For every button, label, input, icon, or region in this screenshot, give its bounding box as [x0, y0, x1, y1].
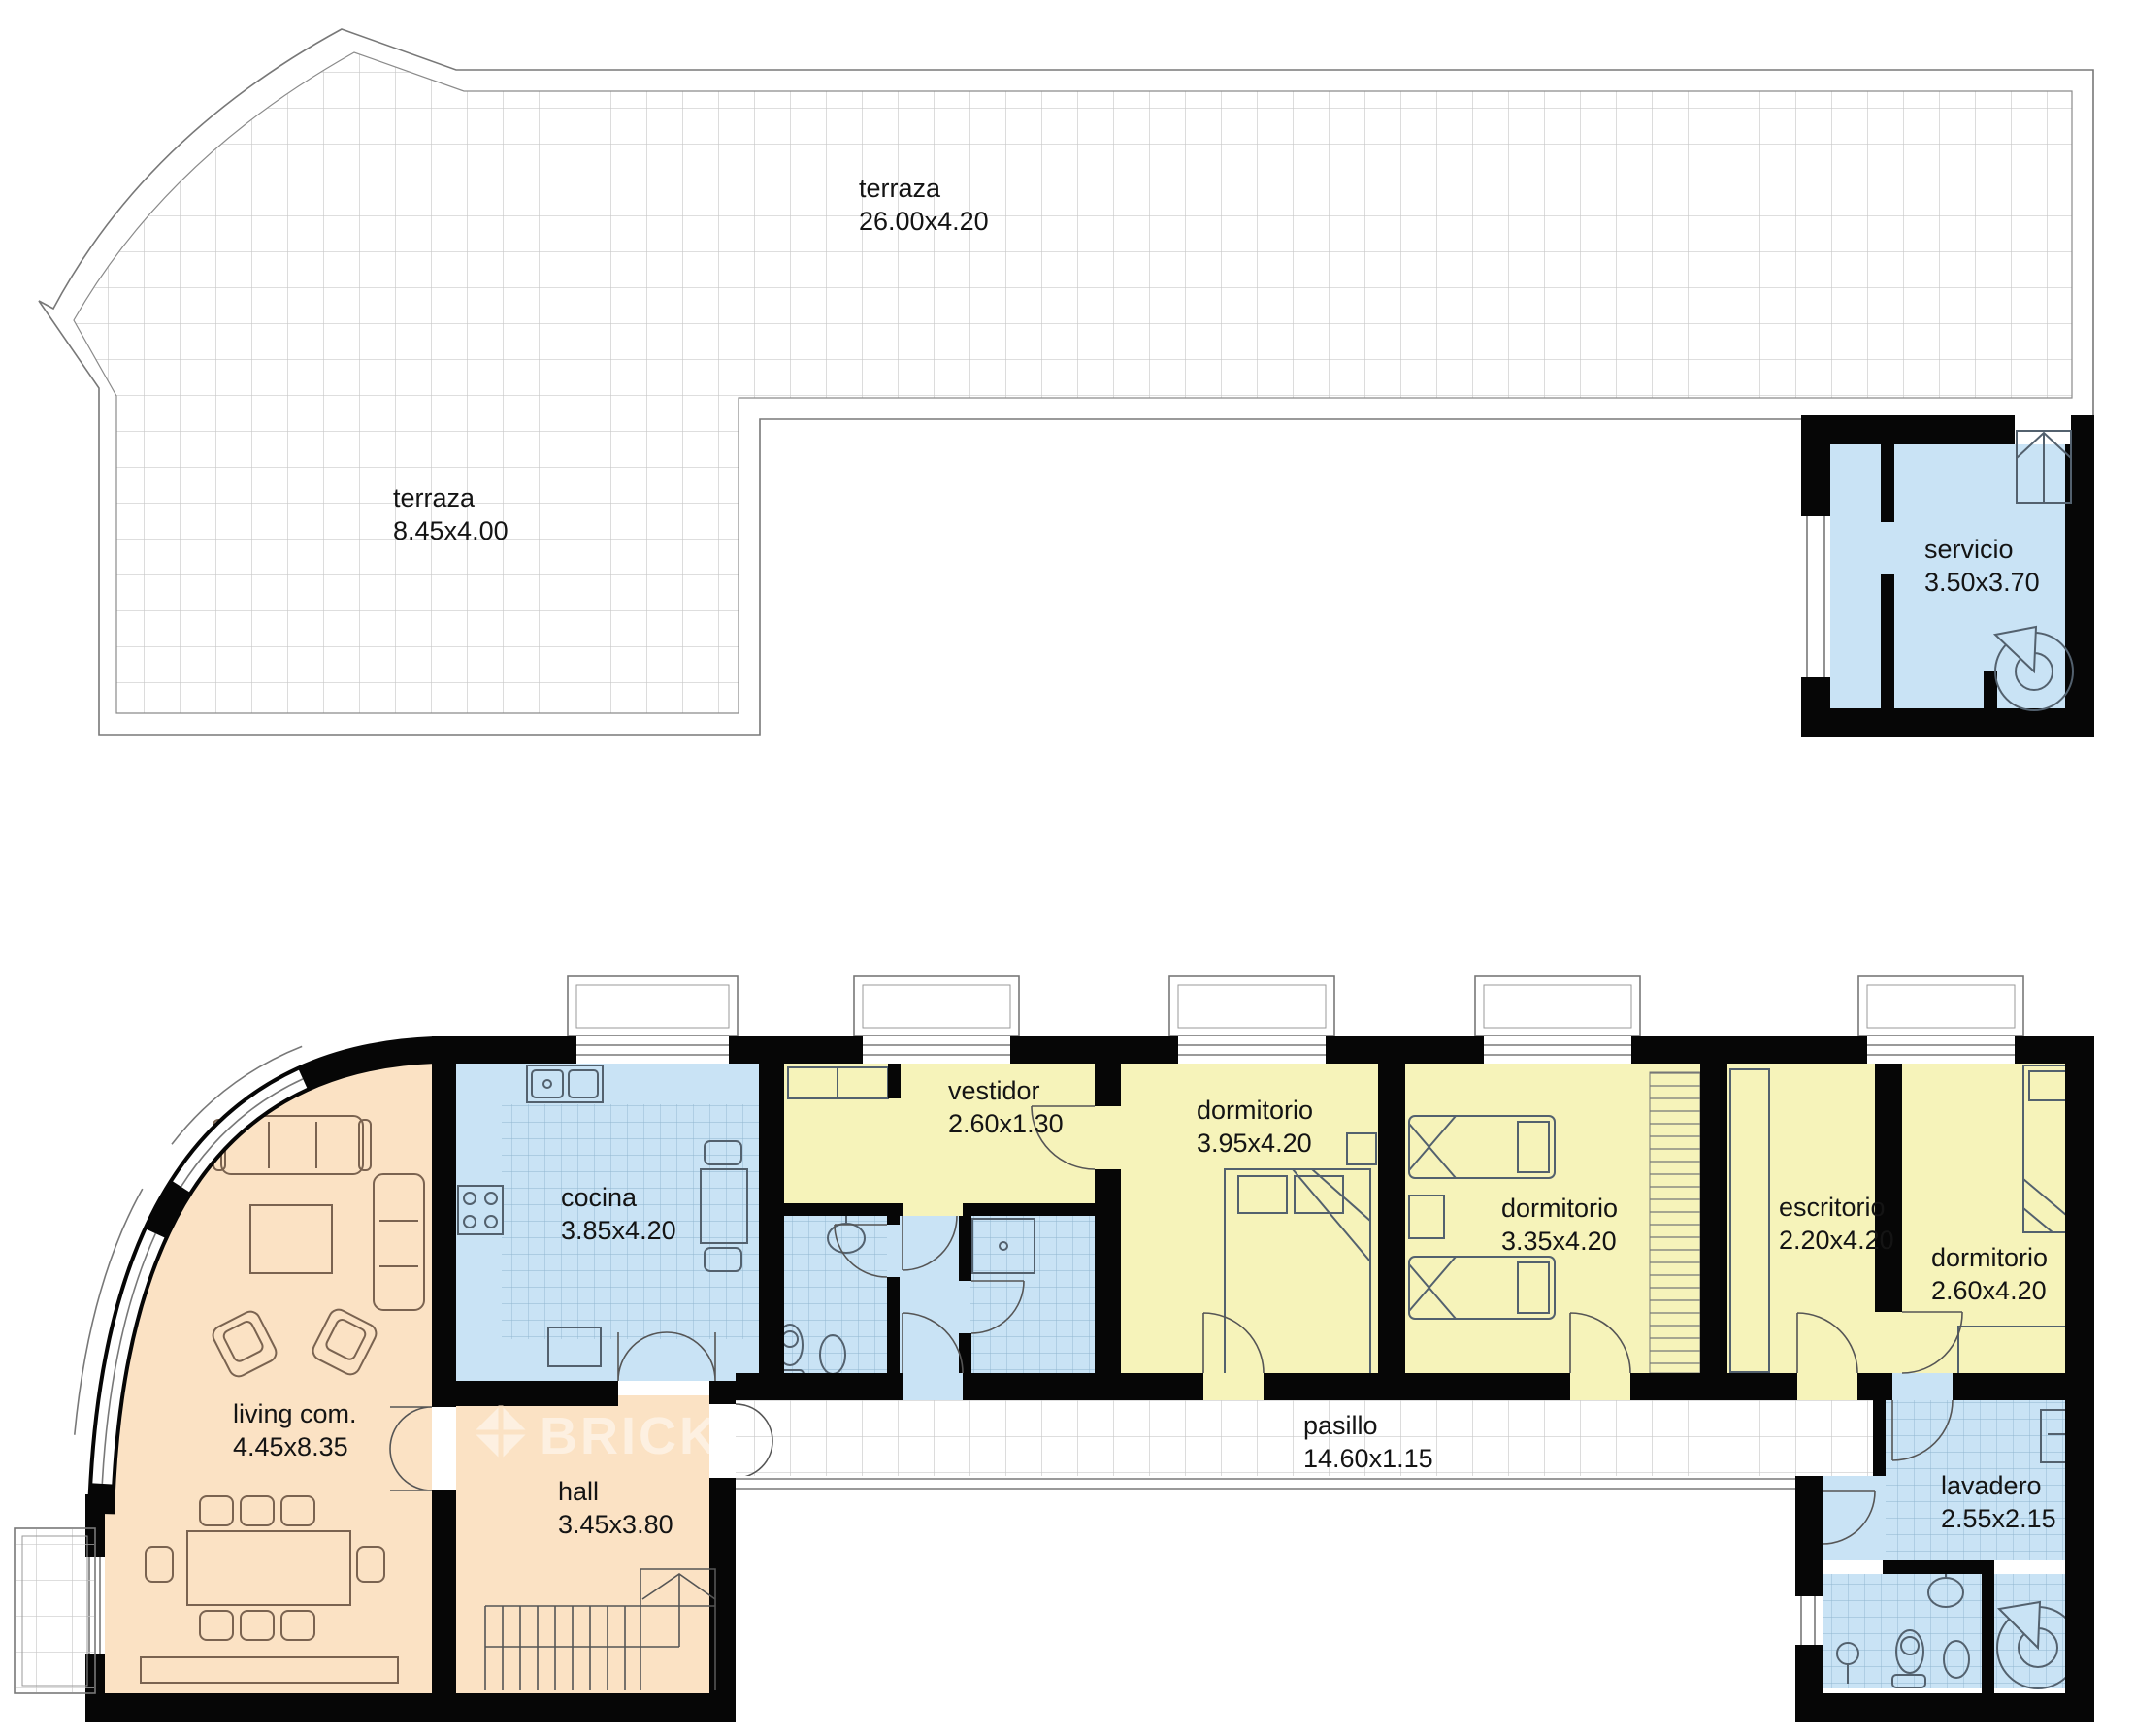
dormitorio1-dims: 3.95x4.20 — [1197, 1129, 1312, 1158]
window-bumpout-vestidor — [854, 976, 1019, 1036]
window-bumpout-dorm2 — [1475, 976, 1640, 1036]
servicio-partition-lower — [1881, 574, 1894, 708]
partition-vestidor-a — [784, 1203, 903, 1216]
wall-lavadero-west-a — [1795, 1476, 1823, 1596]
living-floor — [101, 1050, 440, 1693]
wardrobe-striped-icon — [1650, 1072, 1700, 1373]
partition-vestidor-b — [963, 1203, 1095, 1216]
floor-plan-drawing: terraza 26.00x4.20 terraza 8.45x4.00 ser… — [0, 0, 2135, 1736]
wall-lavadero-west-upper — [1873, 1400, 1886, 1476]
vestidor-dims: 2.60x1.30 — [948, 1109, 1064, 1138]
bath-right-tiles — [970, 1211, 1095, 1373]
wall-bottom-right — [1795, 1693, 2094, 1722]
servicio-dims: 3.50x3.70 — [1924, 568, 2040, 597]
living-label: living com. — [233, 1399, 357, 1428]
bath2-tiles — [1823, 1574, 1982, 1688]
window-bumpout-dorm1 — [1169, 976, 1334, 1036]
dormitorio3-label: dormitorio — [1931, 1243, 2048, 1272]
pasillo-south-glazing — [736, 1476, 1795, 1491]
pasillo-dims: 14.60x1.15 — [1303, 1444, 1433, 1473]
terraza-left-label: terraza — [393, 483, 476, 512]
partition-bathleft-a — [887, 1216, 900, 1225]
hall-dims: 3.45x3.80 — [558, 1510, 673, 1539]
planter-box — [15, 1528, 95, 1693]
lavadero-vestibule-floor — [1823, 1476, 1886, 1560]
wall-living-divider — [432, 1036, 456, 1693]
cocina-label: cocina — [561, 1183, 638, 1212]
partition-bath2-h — [1883, 1560, 1992, 1574]
partition-bathright-b — [959, 1333, 971, 1373]
servicio-window — [1801, 516, 1830, 677]
brick-watermark-text: BRICK — [540, 1407, 720, 1465]
servicio-label: servicio — [1924, 535, 2014, 564]
wall-dorm1-dorm2 — [1378, 1064, 1405, 1373]
dormitorio1-label: dormitorio — [1197, 1096, 1313, 1125]
dormitorio3-dims: 2.60x4.20 — [1931, 1276, 2047, 1305]
escritorio-label: escritorio — [1779, 1193, 1886, 1222]
lavadero-label: lavadero — [1941, 1471, 2042, 1500]
terrace-roof: terraza 26.00x4.20 terraza 8.45x4.00 — [39, 29, 2093, 735]
wall-cocina-hall-a — [456, 1381, 618, 1406]
wall-cocina-vestidor — [759, 1064, 784, 1373]
hall-label: hall — [558, 1477, 599, 1506]
pasillo-label: pasillo — [1303, 1411, 1378, 1440]
wall-bottom-left — [85, 1693, 736, 1722]
escritorio-dims: 2.20x4.20 — [1779, 1226, 1894, 1255]
partition-bathleft-b — [887, 1277, 900, 1373]
living-dims: 4.45x8.35 — [233, 1432, 348, 1461]
partition-closet-stub — [888, 1064, 901, 1098]
window-bumpout-cocina — [568, 976, 738, 1036]
vestidor-label: vestidor — [948, 1076, 1040, 1105]
partition-bath2-v — [1982, 1560, 1994, 1693]
dormitorio2-dims: 3.35x4.20 — [1501, 1227, 1617, 1256]
wall-dorm2-escritorio — [1700, 1064, 1727, 1373]
servicio-partition-upper — [1881, 444, 1894, 522]
cocina-dims: 3.85x4.20 — [561, 1216, 676, 1245]
lavadero-west-window — [1795, 1596, 1823, 1645]
terraza-left-dims: 8.45x4.00 — [393, 516, 509, 545]
servicio-room: servicio 3.50x3.70 — [1801, 415, 2094, 737]
terraza-top-dims: 26.00x4.20 — [859, 207, 989, 236]
floor-plan-page: terraza 26.00x4.20 terraza 8.45x4.00 ser… — [0, 0, 2135, 1736]
window-bumpouts — [568, 976, 2023, 1036]
dormitorio2-label: dormitorio — [1501, 1194, 1618, 1223]
wall-lavadero-west-b — [1795, 1645, 1823, 1693]
window-bumpout-dorm3 — [1858, 976, 2023, 1036]
partition-bathright-a — [959, 1216, 971, 1281]
terraza-top-label: terraza — [859, 174, 941, 203]
terrace-grid — [74, 52, 2072, 713]
lavadero-dims: 2.55x2.15 — [1941, 1504, 2056, 1533]
